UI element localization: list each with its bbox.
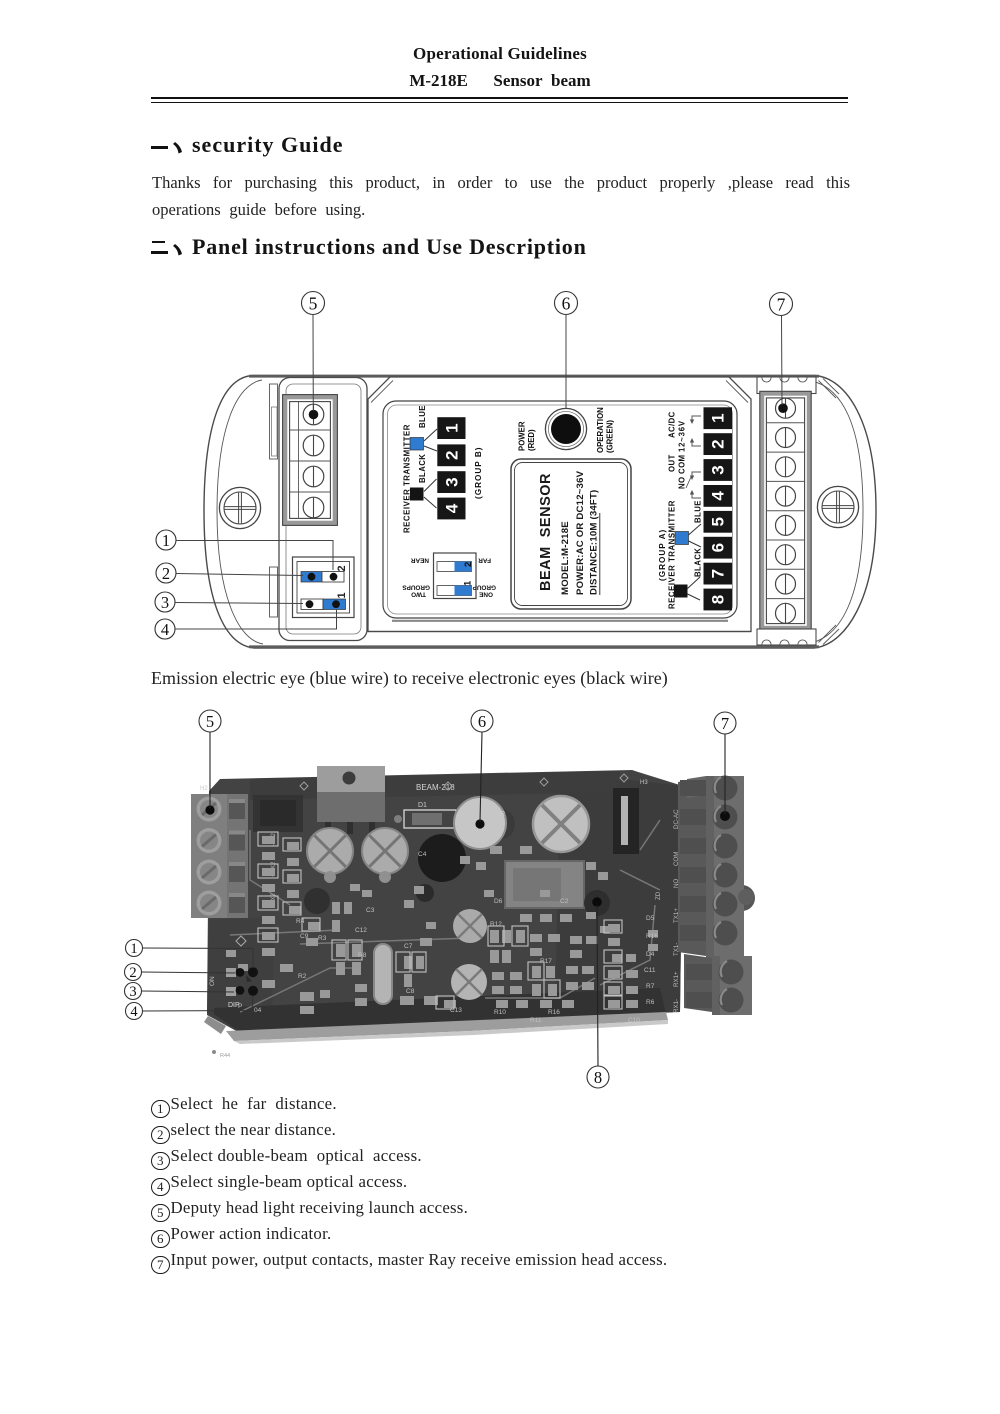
svg-text:2: 2 — [463, 562, 474, 567]
svg-text:1: 1 — [463, 580, 474, 586]
svg-text:R6: R6 — [646, 999, 655, 1006]
svg-text:BLACK: BLACK — [418, 454, 427, 483]
svg-text:BEAM SENSOR: BEAM SENSOR — [538, 473, 554, 591]
svg-text:OPERATION: OPERATION — [596, 407, 605, 453]
svg-text:(GREEN): (GREEN) — [606, 420, 615, 453]
svg-text:D6: D6 — [494, 898, 503, 905]
svg-text:12~36V: 12~36V — [678, 420, 687, 452]
svg-text:2: 2 — [709, 439, 728, 448]
svg-text:R: R — [500, 811, 505, 818]
svg-text:TX1-: TX1- — [673, 943, 680, 956]
svg-text:C2: C2 — [560, 898, 569, 905]
svg-text:BLACK: BLACK — [694, 548, 703, 577]
svg-text:BEAM-218: BEAM-218 — [416, 783, 455, 792]
svg-text:POWER: POWER — [518, 421, 527, 451]
svg-text:(GROUP A): (GROUP A) — [658, 529, 667, 581]
svg-text:C7: C7 — [404, 943, 413, 950]
svg-text:C8: C8 — [406, 988, 415, 995]
svg-text:3: 3 — [442, 477, 461, 486]
svg-text:04: 04 — [254, 1007, 262, 1014]
svg-text:5: 5 — [309, 293, 318, 313]
svg-text:3: 3 — [161, 593, 169, 612]
svg-text:C4: C4 — [418, 851, 427, 858]
svg-text:R17: R17 — [540, 958, 552, 965]
svg-text:FAR: FAR — [478, 557, 491, 564]
svg-text:4: 4 — [709, 491, 728, 501]
svg-text:DISTANCE:10M (34FT): DISTANCE:10M (34FT) — [589, 490, 600, 595]
svg-text:DIP: DIP — [228, 1002, 240, 1009]
svg-text:6: 6 — [709, 543, 728, 552]
svg-text:4: 4 — [130, 1004, 138, 1020]
svg-text:8: 8 — [594, 1068, 602, 1087]
svg-text:C10: C10 — [628, 1017, 640, 1024]
svg-text:C13: C13 — [450, 1007, 462, 1014]
svg-text:TX1+: TX1+ — [673, 908, 680, 923]
svg-text:MODEL:M-218E: MODEL:M-218E — [560, 521, 571, 595]
svg-text:R10: R10 — [494, 1009, 506, 1016]
svg-text:6: 6 — [562, 293, 571, 313]
svg-text:3: 3 — [709, 465, 728, 474]
svg-text:R3: R3 — [318, 935, 327, 942]
svg-text:COM: COM — [673, 852, 680, 866]
svg-text:C12: C12 — [355, 927, 367, 934]
svg-text:ZD: ZD — [655, 891, 662, 900]
svg-text:R4: R4 — [296, 918, 305, 925]
svg-text:AC/DC: AC/DC — [668, 411, 677, 438]
svg-text:R7: R7 — [646, 983, 655, 990]
svg-text:NO: NO — [673, 879, 680, 888]
svg-text:4: 4 — [442, 503, 461, 513]
svg-text:TWO: TWO — [411, 591, 426, 598]
svg-text:GROUP: GROUP — [472, 584, 496, 591]
svg-text:2: 2 — [336, 565, 348, 571]
svg-text:BLUE: BLUE — [694, 500, 703, 523]
svg-text:ON: ON — [209, 976, 216, 986]
svg-text:C11: C11 — [644, 967, 656, 974]
svg-text:2: 2 — [129, 965, 136, 981]
svg-text:BLUE: BLUE — [418, 405, 427, 428]
svg-text:R12: R12 — [490, 921, 502, 928]
svg-text:NO COM: NO COM — [678, 455, 687, 489]
svg-text:1: 1 — [130, 941, 137, 957]
svg-text:R16: R16 — [548, 1009, 560, 1016]
svg-text:1: 1 — [442, 423, 461, 432]
svg-text:5: 5 — [206, 712, 214, 731]
svg-text:R44: R44 — [220, 1053, 230, 1059]
svg-text:1: 1 — [336, 592, 348, 598]
svg-text:5: 5 — [709, 517, 728, 526]
svg-text:6: 6 — [478, 712, 486, 731]
svg-text:NEAR: NEAR — [411, 557, 429, 564]
svg-text:H2: H2 — [200, 786, 208, 792]
svg-text:2: 2 — [442, 451, 461, 460]
svg-text:D5: D5 — [646, 915, 655, 922]
svg-text:RX1-: RX1- — [673, 999, 680, 1013]
svg-text:C9: C9 — [300, 933, 309, 940]
svg-text:2: 2 — [162, 564, 170, 583]
svg-text:(RED): (RED) — [527, 429, 536, 451]
svg-text:3: 3 — [129, 984, 136, 1000]
svg-text:ONE: ONE — [478, 591, 493, 598]
svg-text:OUT: OUT — [668, 454, 677, 472]
svg-text:R8: R8 — [358, 952, 367, 959]
svg-text:4: 4 — [161, 620, 169, 639]
svg-text:R16: R16 — [646, 933, 658, 940]
svg-text:R2: R2 — [298, 973, 307, 980]
svg-text:R11: R11 — [530, 1017, 542, 1024]
svg-text:H3: H3 — [640, 780, 648, 786]
svg-text:7: 7 — [721, 714, 729, 733]
svg-text:1: 1 — [709, 413, 728, 422]
svg-text:7: 7 — [777, 294, 786, 314]
svg-text:8: 8 — [709, 595, 728, 604]
svg-text:D1: D1 — [418, 802, 427, 809]
svg-text:DC-AC: DC-AC — [673, 809, 680, 829]
svg-text:7: 7 — [709, 569, 728, 578]
svg-text:POWER:AC OR DC12~36V: POWER:AC OR DC12~36V — [575, 470, 586, 595]
svg-text:(GROUP B): (GROUP B) — [474, 446, 483, 499]
svg-text:C3: C3 — [366, 907, 375, 914]
svg-text:RX1+: RX1+ — [673, 971, 680, 987]
svg-text:1: 1 — [162, 531, 170, 550]
svg-text:D4: D4 — [646, 951, 655, 958]
svg-text:GROUPS: GROUPS — [402, 584, 430, 591]
